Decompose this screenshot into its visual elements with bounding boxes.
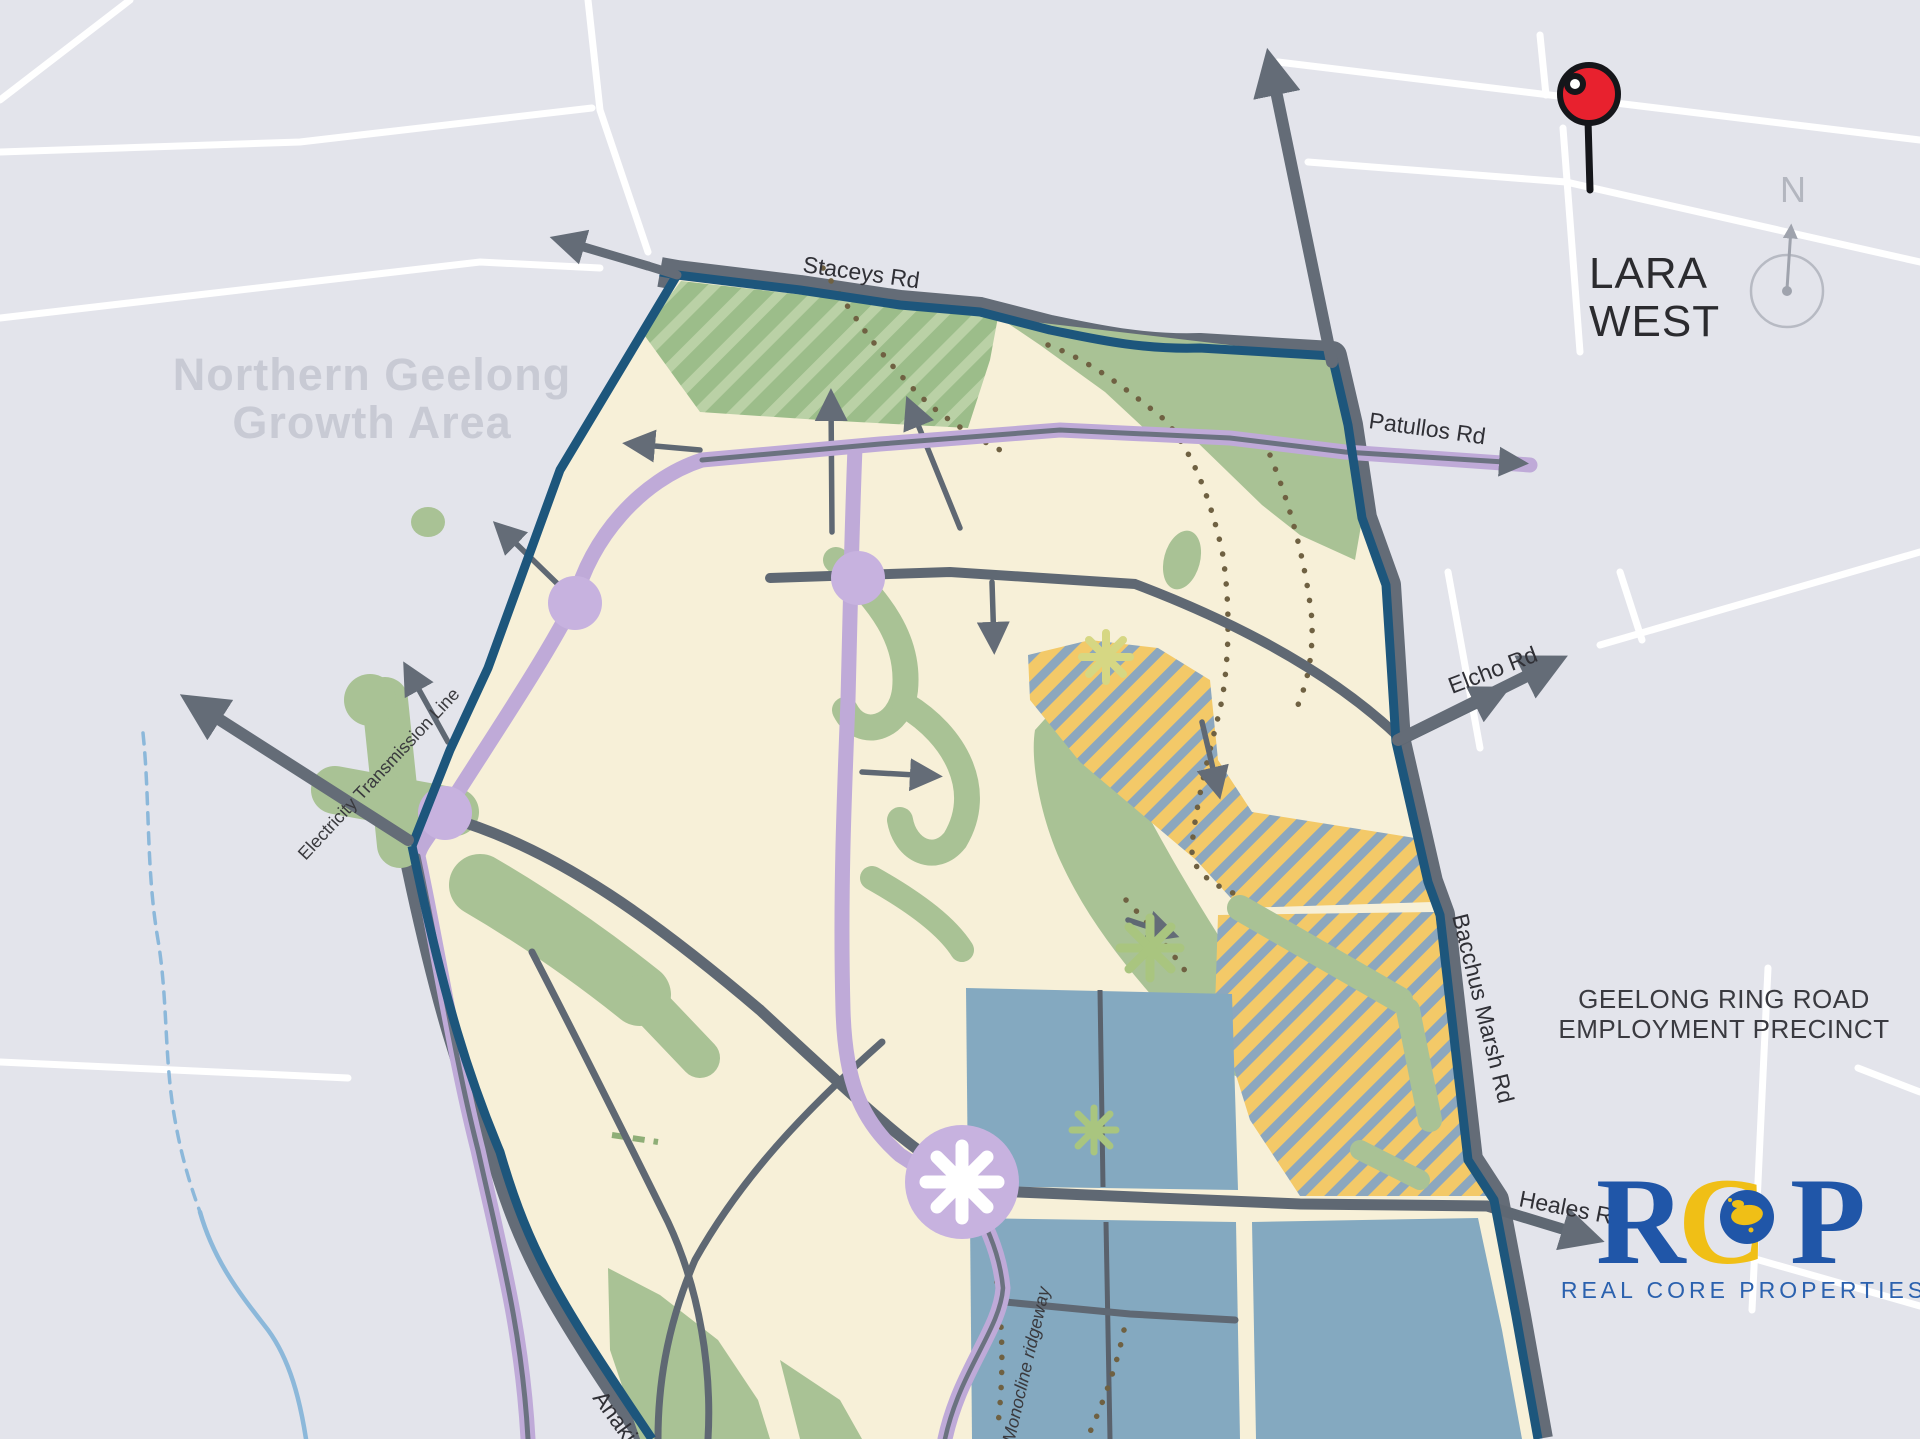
map-title-line1: LARA [1589, 249, 1708, 298]
logo-letter-p: P [1790, 1153, 1866, 1290]
asterisk-icon [926, 1146, 998, 1218]
star-icon [1072, 1108, 1116, 1152]
lara-west-structure-plan-map: Northern Geelong Growth Area Staceys Rd … [0, 0, 1920, 1439]
logo-letter-r: R [1596, 1153, 1687, 1290]
node-circle [548, 576, 602, 630]
town-centre-symbol [905, 1125, 1019, 1239]
map-canvas: Northern Geelong Growth Area Staceys Rd … [0, 0, 1920, 1439]
employment-precinct-label-line1: GEELONG RING ROAD [1578, 984, 1870, 1014]
node-circle [831, 551, 885, 605]
compass-north-letter: N [1780, 169, 1806, 210]
map-title-line2: WEST [1589, 297, 1720, 346]
logo-globe-icon [1720, 1190, 1774, 1244]
growth-area-label-line1: Northern Geelong [173, 349, 572, 400]
star-icon [1082, 633, 1130, 681]
star-icon [1120, 918, 1180, 978]
logo-tagline: REAL CORE PROPERTIES [1561, 1277, 1920, 1303]
employment-precinct-label-line2: EMPLOYMENT PRECINCT [1558, 1014, 1889, 1044]
growth-area-label-line2: Growth Area [232, 397, 511, 448]
